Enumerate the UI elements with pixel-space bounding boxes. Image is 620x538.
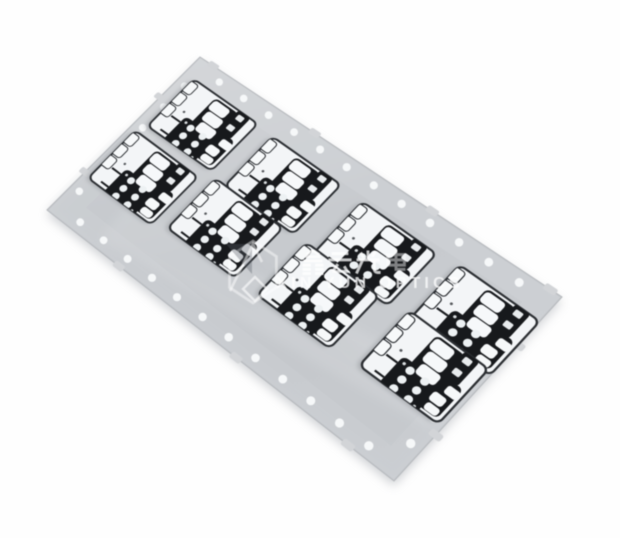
svg-text:XIN YUN OPTICS: XIN YUN OPTICS (276, 275, 463, 292)
